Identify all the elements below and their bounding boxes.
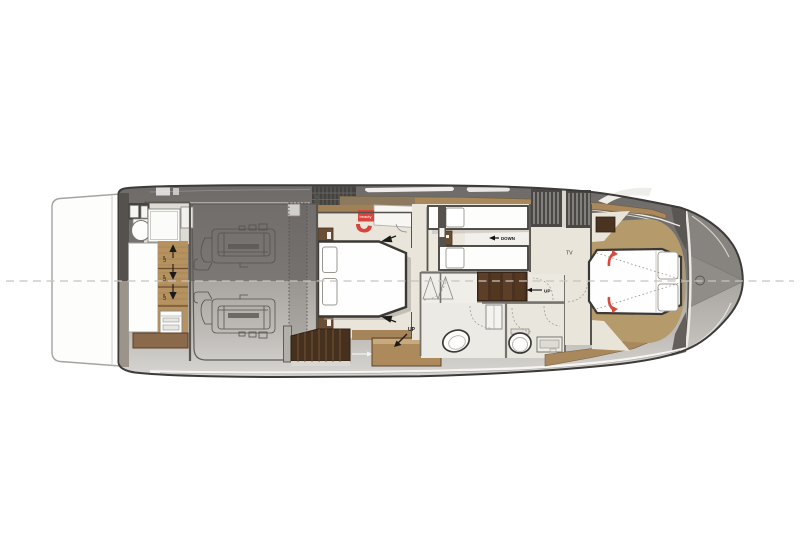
svg-text:beauty: beauty [360, 214, 372, 219]
svg-text:UP: UP [162, 275, 167, 281]
svg-text:UP: UP [162, 256, 167, 262]
svg-text:UP: UP [544, 288, 550, 293]
svg-text:UP: UP [162, 294, 167, 300]
svg-text:TV: TV [566, 251, 573, 257]
svg-text:UP: UP [408, 327, 416, 333]
svg-text:DOWN: DOWN [501, 236, 515, 241]
